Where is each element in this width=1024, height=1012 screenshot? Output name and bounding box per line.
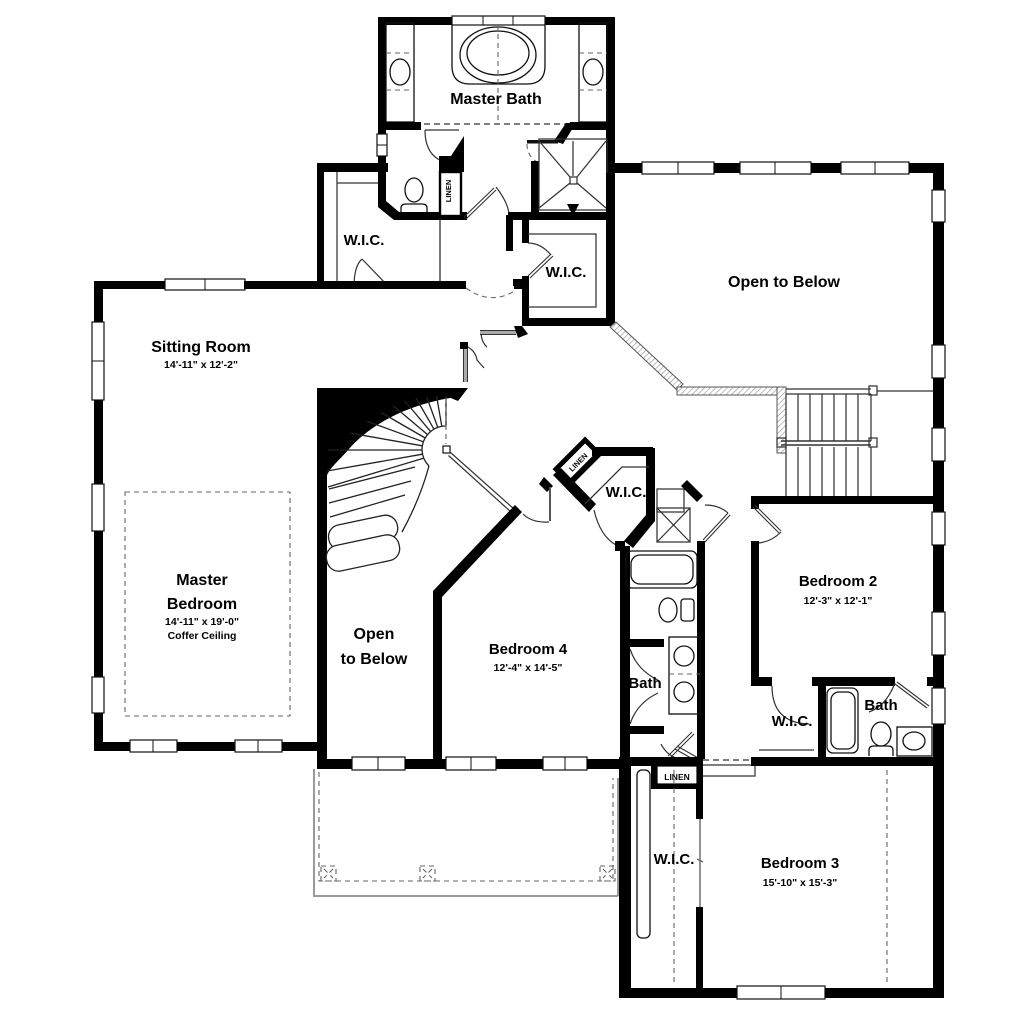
svg-text:Open to Below: Open to Below [728,274,841,291]
svg-text:W.I.C.: W.I.C. [772,713,813,730]
svg-text:14'-11" x 19'-0": 14'-11" x 19'-0" [165,616,239,628]
svg-text:Bedroom 4: Bedroom 4 [489,641,568,658]
svg-text:Bedroom 2: Bedroom 2 [799,573,877,590]
svg-text:W.I.C.: W.I.C. [344,232,385,249]
svg-text:W.I.C.: W.I.C. [606,484,647,501]
svg-text:12'-3" x 12'-1": 12'-3" x 12'-1" [804,595,873,607]
svg-text:Sitting Room: Sitting Room [151,339,251,356]
svg-text:Coffer Ceiling: Coffer Ceiling [168,630,237,642]
svg-text:LINEN: LINEN [664,772,690,782]
svg-text:Master Bath: Master Bath [450,91,542,108]
svg-text:Master: Master [176,572,228,589]
svg-text:Open: Open [354,626,395,643]
svg-text:to Below: to Below [341,651,408,668]
svg-text:15'-10" x 15'-3": 15'-10" x 15'-3" [763,877,838,889]
svg-text:Bath: Bath [864,697,897,714]
svg-text:W.I.C.: W.I.C. [546,264,587,281]
svg-text:Bedroom: Bedroom [167,596,237,613]
svg-text:12'-4" x 14'-5": 12'-4" x 14'-5" [494,662,563,674]
svg-text:Bedroom 3: Bedroom 3 [761,855,839,872]
svg-text:LINEN: LINEN [444,180,453,203]
svg-text:14'-11" x 12'-2": 14'-11" x 12'-2" [164,359,238,371]
svg-text:W.I.C.: W.I.C. [654,851,695,868]
svg-text:Bath: Bath [628,675,661,692]
